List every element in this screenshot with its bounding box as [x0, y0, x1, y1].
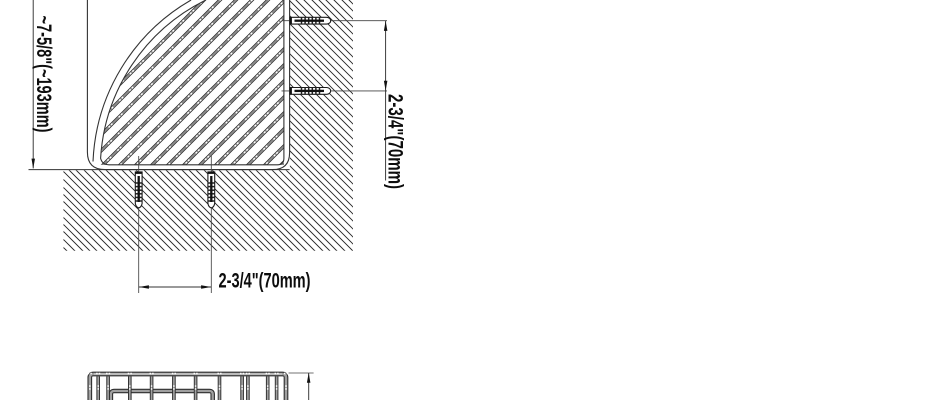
- svg-text:~7-5/8"(~193mm): ~7-5/8"(~193mm): [32, 16, 56, 133]
- svg-text:2-3/4"(70mm): 2-3/4"(70mm): [383, 94, 407, 189]
- svg-text:2-3/4"(70mm): 2-3/4"(70mm): [219, 269, 311, 293]
